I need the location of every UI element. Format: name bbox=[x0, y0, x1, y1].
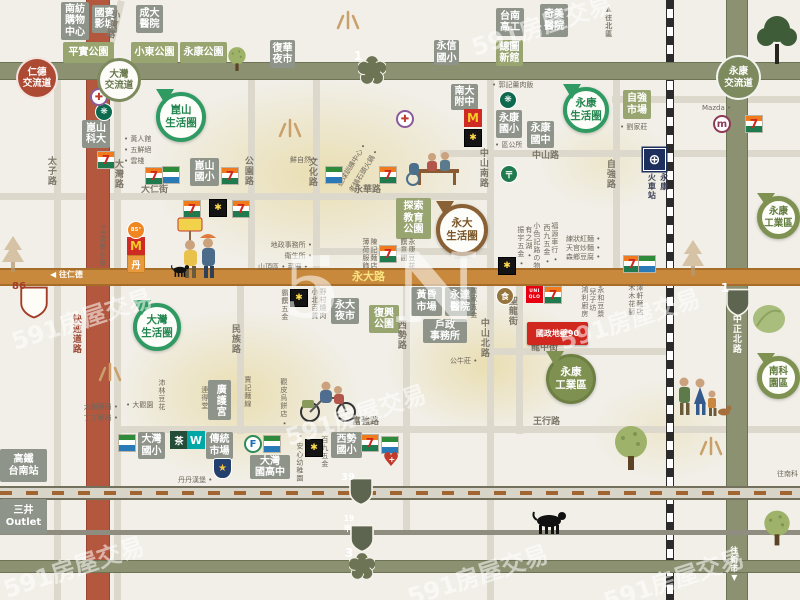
icon-glyph: 7 bbox=[628, 257, 636, 271]
interchange-badge: 大灣 交流道 bbox=[97, 58, 141, 102]
icon-glyph: 食 bbox=[501, 291, 509, 302]
icon-glyph: ♥ bbox=[382, 449, 399, 471]
interchange-badge: 永康 交流道 bbox=[716, 55, 761, 100]
park-box: 總圖 新館 bbox=[496, 40, 523, 66]
icon-glyph: ❋ bbox=[100, 107, 108, 117]
freeway-road bbox=[0, 560, 800, 573]
mcdonalds-icon: M bbox=[464, 109, 482, 127]
road-label: 民族路 bbox=[229, 324, 239, 354]
park-box: 小東公園 bbox=[131, 42, 178, 63]
uniqlo-icon: UNI QLO bbox=[526, 286, 543, 303]
pxmart-stripes-icon bbox=[263, 435, 281, 453]
landmark-box: 三井 Outlet bbox=[0, 499, 47, 534]
road-label: 自強路 bbox=[604, 159, 614, 189]
icon-glyph: ✱ bbox=[469, 133, 477, 143]
shop-label: 公牛莊 • bbox=[450, 356, 477, 367]
icon-glyph: W bbox=[190, 434, 202, 447]
landmark-box: 台南 高工 bbox=[496, 8, 524, 36]
road-label: 中山北路 bbox=[478, 318, 488, 358]
shop-label: • 郭記羹肉飯 bbox=[492, 80, 533, 91]
mcdonalds-icon: M bbox=[127, 237, 145, 255]
park-box: 探索 教育 公園 bbox=[396, 198, 431, 239]
seven-eleven-icon: 7 bbox=[145, 167, 163, 185]
pxmart-stripes-icon bbox=[638, 255, 656, 273]
police-station-icon: ★ bbox=[213, 458, 232, 479]
landmark-box: 奇美 醫院 bbox=[540, 4, 568, 37]
pin-tail bbox=[757, 193, 775, 206]
railway-line bbox=[666, 0, 674, 600]
pxmart-stripes-icon bbox=[162, 166, 180, 184]
road-label: 西勢路 bbox=[395, 320, 405, 350]
park-box: 自強 市場 bbox=[623, 90, 651, 119]
shop-label: 賈記麵線 bbox=[242, 376, 253, 408]
minor-street bbox=[114, 80, 121, 600]
pin-tail bbox=[436, 201, 454, 216]
pin-tail bbox=[133, 300, 151, 315]
icon-glyph: ★ bbox=[218, 463, 227, 474]
familymart-icon: F bbox=[244, 435, 262, 453]
property-marker: 國政地壁90 bbox=[527, 322, 588, 345]
pin-tail bbox=[156, 89, 174, 104]
seven-eleven-icon: 7 bbox=[379, 245, 397, 263]
route-39-road bbox=[0, 486, 800, 500]
pxmart-stripes-icon bbox=[325, 166, 343, 184]
road-label: ▲往北區 bbox=[604, 5, 612, 38]
icon-glyph: ✱ bbox=[214, 203, 222, 213]
shop-label: 地政事務所 • 衛生所 • bbox=[252, 240, 312, 262]
park-box: 平實公園 bbox=[63, 42, 114, 63]
shop-label: 永和豆漿 bbox=[595, 286, 606, 318]
landmark-box: 成大 醫院 bbox=[136, 5, 163, 33]
shop-label: 買家五金 bbox=[468, 287, 479, 319]
seven-eleven-icon: 7 bbox=[232, 200, 250, 218]
icon-glyph: 7 bbox=[237, 202, 245, 216]
pxmart-stripes-icon bbox=[118, 434, 136, 452]
shop-label: Mazda • bbox=[702, 103, 731, 114]
clinic-icon: ♥ bbox=[382, 451, 400, 469]
wellcome-market-icon: W bbox=[187, 431, 205, 449]
shop-label: 山頂區 • 菜廟 • bbox=[258, 262, 308, 273]
pxmart-icon: ✱ bbox=[209, 199, 227, 217]
landmark-box: 永信 國小 bbox=[434, 40, 459, 65]
shop-label: 野村燒肉 bbox=[317, 288, 328, 320]
road-label: 公園路 bbox=[242, 156, 252, 186]
icon-glyph: 7 bbox=[366, 436, 374, 450]
icon-glyph: 7 bbox=[384, 247, 392, 261]
icon-glyph: F bbox=[250, 439, 257, 450]
route-19a-road bbox=[0, 530, 800, 535]
eatery-icon: 食 bbox=[496, 287, 514, 305]
post-office-icon: 〒 bbox=[500, 165, 518, 183]
road-label: 中山路 bbox=[532, 152, 559, 162]
shop-label: 大樹藥局 • 丁丁藥局 • bbox=[70, 402, 118, 424]
shop-label: 永康豆花 bbox=[406, 238, 417, 270]
shop-label: • 區公所 bbox=[495, 140, 522, 151]
landmark-box: 南大 附中 bbox=[451, 84, 478, 110]
icon-glyph: 7 bbox=[188, 202, 196, 216]
pxmart-icon: ✱ bbox=[305, 439, 323, 457]
icon-glyph: ✱ bbox=[310, 443, 318, 453]
shop-label: 霸饌五金 bbox=[279, 289, 290, 321]
85c-cafe-icon: 85° bbox=[127, 221, 145, 239]
icon-glyph: 7 bbox=[150, 169, 158, 183]
pxmart-icon: ✱ bbox=[464, 129, 482, 147]
icon-glyph: m bbox=[717, 119, 727, 130]
minor-street bbox=[237, 286, 244, 434]
icon-glyph: 7 bbox=[226, 169, 234, 183]
landmark-box: 傳統 市場 bbox=[206, 432, 233, 459]
landmark-box: 崑山 國小 bbox=[190, 158, 219, 186]
shop-label: 連得堂 bbox=[199, 386, 210, 410]
road-label: 中正北路 bbox=[730, 314, 740, 354]
road-label: 大仁街 bbox=[141, 186, 168, 196]
pin-tail bbox=[546, 351, 564, 366]
icon-glyph: ⊕ bbox=[649, 152, 661, 168]
shop-label: 丹丹漢堡 • bbox=[178, 475, 212, 486]
shop-label: 福源車行 • bbox=[549, 222, 560, 262]
icon-glyph: 7 bbox=[102, 153, 110, 167]
landmark-box: 永大 夜市 bbox=[331, 298, 359, 324]
minor-street bbox=[516, 286, 523, 434]
landmark-box: 西勢 國小 bbox=[331, 432, 362, 458]
landmark-box: 大灣 國高中 bbox=[250, 455, 290, 479]
seven-eleven-icon: 7 bbox=[745, 115, 763, 133]
mazda-dealer-icon: m bbox=[713, 115, 731, 133]
landmark-box: 永康 國小 bbox=[496, 110, 522, 138]
landmark-box: 大灣 國小 bbox=[138, 432, 165, 459]
icon-glyph: 7 bbox=[384, 168, 392, 182]
interchange-badge: 仁德 交流道 bbox=[16, 57, 58, 99]
tea-shop-icon: 茶 bbox=[170, 431, 188, 449]
shop-label: 陳記麵店 bbox=[368, 238, 379, 270]
shop-label: 往南科 bbox=[777, 469, 798, 480]
icon-glyph: 〒 bbox=[504, 168, 513, 181]
shop-label: • 安心幼稚園 bbox=[294, 434, 305, 482]
landmark-box: 廣護宮 bbox=[208, 380, 231, 420]
shop-label: 54清粥小菜 bbox=[97, 224, 108, 267]
icon-glyph: ✱ bbox=[295, 293, 303, 303]
road-label: 往新市▼ bbox=[729, 546, 738, 583]
seven-eleven-icon: 7 bbox=[97, 151, 115, 169]
pharmacy-icon: ✚ bbox=[396, 110, 414, 128]
road-label: ◀ 往仁德 bbox=[50, 271, 83, 280]
landmark-box: 高鐵 台南站 bbox=[0, 449, 47, 482]
icon-glyph: UNI QLO bbox=[529, 289, 541, 300]
shop-label: 觀皮烏餅店 • bbox=[278, 378, 289, 426]
seven-eleven-icon: 7 bbox=[361, 434, 379, 452]
shop-label: • 劉家莊 bbox=[620, 122, 647, 133]
seven-eleven-icon: 7 bbox=[221, 167, 239, 185]
landmark-box: 永康 國中 bbox=[527, 121, 554, 148]
shop-label: 鮮自然 • bbox=[290, 155, 317, 166]
pxmart-icon: ✱ bbox=[498, 257, 516, 275]
road-label: 快速道路 bbox=[70, 314, 80, 354]
icon-glyph: ❋ bbox=[504, 95, 512, 105]
train-station-label: 永康 火車站 bbox=[645, 173, 670, 200]
road-label: 永大路 bbox=[352, 271, 385, 283]
icon-glyph: 丹 bbox=[131, 258, 140, 271]
road-label: 太子路 bbox=[45, 156, 55, 186]
icon-glyph: M bbox=[130, 239, 142, 253]
shop-label: 澤軒麵店 bbox=[634, 284, 645, 316]
landmark-box: 黃昏 市場 bbox=[411, 287, 442, 316]
pin-tail bbox=[563, 84, 581, 99]
map-canvas: 1313919甲86南紡 購物 中心國賓 影城成大 醫院復華 夜市永信 國小台南… bbox=[0, 0, 800, 600]
icon-glyph: M bbox=[467, 111, 479, 125]
icon-glyph: ✚ bbox=[401, 114, 409, 125]
seven-eleven-icon: 7 bbox=[379, 166, 397, 184]
landmark-box: 南紡 購物 中心 bbox=[61, 2, 89, 40]
shop-label: • 黃人館 • 五鮮絕 • 雲棧 bbox=[124, 134, 166, 167]
landmark-box: 復華 夜市 bbox=[270, 40, 295, 68]
park-box: 永康公園 bbox=[180, 42, 227, 63]
icon-glyph: ✱ bbox=[503, 261, 511, 271]
starbucks-icon: ❋ bbox=[499, 91, 517, 109]
landmark-box: 崑山 科大 bbox=[82, 120, 110, 148]
train-station-icon: ⊕ bbox=[643, 148, 666, 171]
shop-label: 沛林豆花 bbox=[156, 379, 167, 411]
road-label: 中山南路 bbox=[477, 148, 487, 188]
shop-label: • 大觀園 bbox=[126, 400, 153, 411]
pin-tail bbox=[757, 353, 775, 366]
icon-glyph: 7 bbox=[750, 117, 758, 131]
dandan-burger-icon: 丹 bbox=[127, 255, 145, 273]
icon-glyph: 85° bbox=[131, 227, 141, 233]
icon-glyph: 7 bbox=[549, 288, 557, 302]
road-label: 王行路 bbox=[533, 418, 560, 428]
landmark-box: 戶政 事務所 bbox=[423, 319, 467, 343]
seven-eleven-icon: 7 bbox=[544, 286, 562, 304]
minor-street bbox=[487, 348, 672, 355]
shop-label: 森鄉豆腐 • bbox=[566, 252, 600, 263]
pxmart-icon: ✱ bbox=[290, 289, 308, 307]
icon-glyph: 茶 bbox=[174, 434, 183, 447]
